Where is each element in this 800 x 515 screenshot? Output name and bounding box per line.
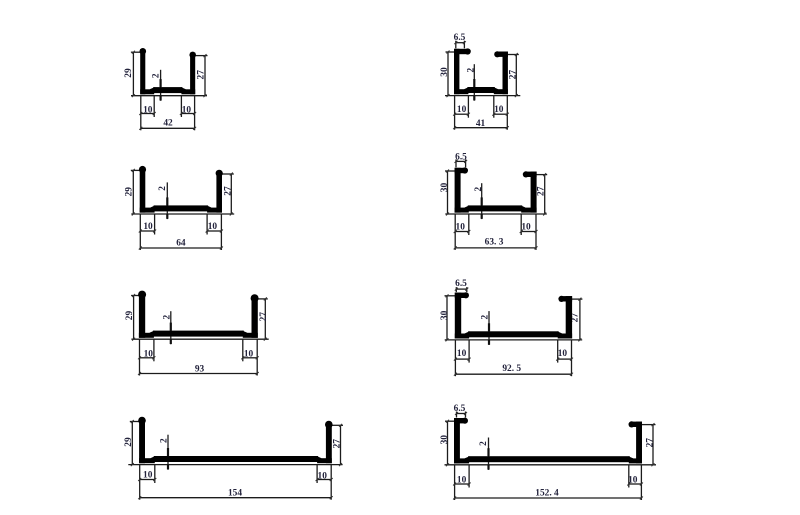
svg-text:63. 3: 63. 3 bbox=[485, 238, 504, 248]
svg-text:6.5: 6.5 bbox=[455, 152, 467, 162]
svg-text:2: 2 bbox=[480, 314, 490, 319]
svg-text:41: 41 bbox=[476, 119, 486, 129]
svg-text:27: 27 bbox=[197, 70, 207, 80]
svg-text:10: 10 bbox=[318, 472, 328, 482]
svg-text:10: 10 bbox=[456, 223, 466, 233]
svg-text:10: 10 bbox=[521, 223, 531, 233]
svg-text:27: 27 bbox=[259, 312, 269, 322]
svg-text:6.5: 6.5 bbox=[454, 404, 466, 414]
svg-text:10: 10 bbox=[143, 105, 153, 115]
svg-text:29: 29 bbox=[125, 311, 135, 321]
svg-text:2: 2 bbox=[479, 441, 489, 446]
svg-text:10: 10 bbox=[628, 475, 638, 485]
svg-text:2: 2 bbox=[162, 315, 172, 320]
svg-text:10: 10 bbox=[457, 349, 467, 359]
svg-text:92. 5: 92. 5 bbox=[502, 364, 521, 374]
svg-text:10: 10 bbox=[143, 222, 153, 232]
svg-text:30: 30 bbox=[440, 183, 450, 193]
svg-text:64: 64 bbox=[176, 238, 186, 248]
svg-text:27: 27 bbox=[645, 438, 655, 448]
svg-text:6.5: 6.5 bbox=[454, 33, 466, 43]
svg-text:10: 10 bbox=[208, 222, 218, 232]
svg-text:6.5: 6.5 bbox=[455, 279, 467, 289]
svg-text:10: 10 bbox=[494, 105, 504, 115]
svg-text:2: 2 bbox=[466, 68, 476, 73]
svg-text:27: 27 bbox=[332, 439, 342, 449]
svg-text:93: 93 bbox=[195, 364, 205, 374]
svg-text:10: 10 bbox=[457, 105, 467, 115]
svg-text:10: 10 bbox=[144, 349, 154, 359]
svg-text:42: 42 bbox=[163, 119, 173, 129]
svg-text:2: 2 bbox=[474, 187, 484, 192]
svg-text:27: 27 bbox=[536, 186, 546, 196]
svg-text:152. 4: 152. 4 bbox=[535, 489, 559, 499]
svg-text:10: 10 bbox=[244, 349, 254, 359]
svg-text:30: 30 bbox=[440, 67, 450, 77]
svg-text:30: 30 bbox=[440, 435, 450, 445]
svg-text:10: 10 bbox=[143, 470, 153, 480]
svg-text:2: 2 bbox=[159, 438, 169, 443]
svg-text:27: 27 bbox=[571, 313, 581, 323]
svg-text:10: 10 bbox=[182, 105, 192, 115]
svg-text:10: 10 bbox=[457, 475, 467, 485]
svg-text:29: 29 bbox=[124, 437, 134, 447]
svg-text:29: 29 bbox=[125, 187, 135, 197]
svg-text:10: 10 bbox=[558, 349, 568, 359]
svg-text:27: 27 bbox=[223, 186, 233, 196]
svg-text:30: 30 bbox=[440, 310, 450, 320]
svg-text:2: 2 bbox=[158, 186, 168, 191]
svg-text:29: 29 bbox=[124, 68, 134, 78]
svg-text:154: 154 bbox=[228, 489, 242, 499]
svg-text:27: 27 bbox=[509, 70, 519, 80]
svg-text:2: 2 bbox=[151, 73, 161, 78]
